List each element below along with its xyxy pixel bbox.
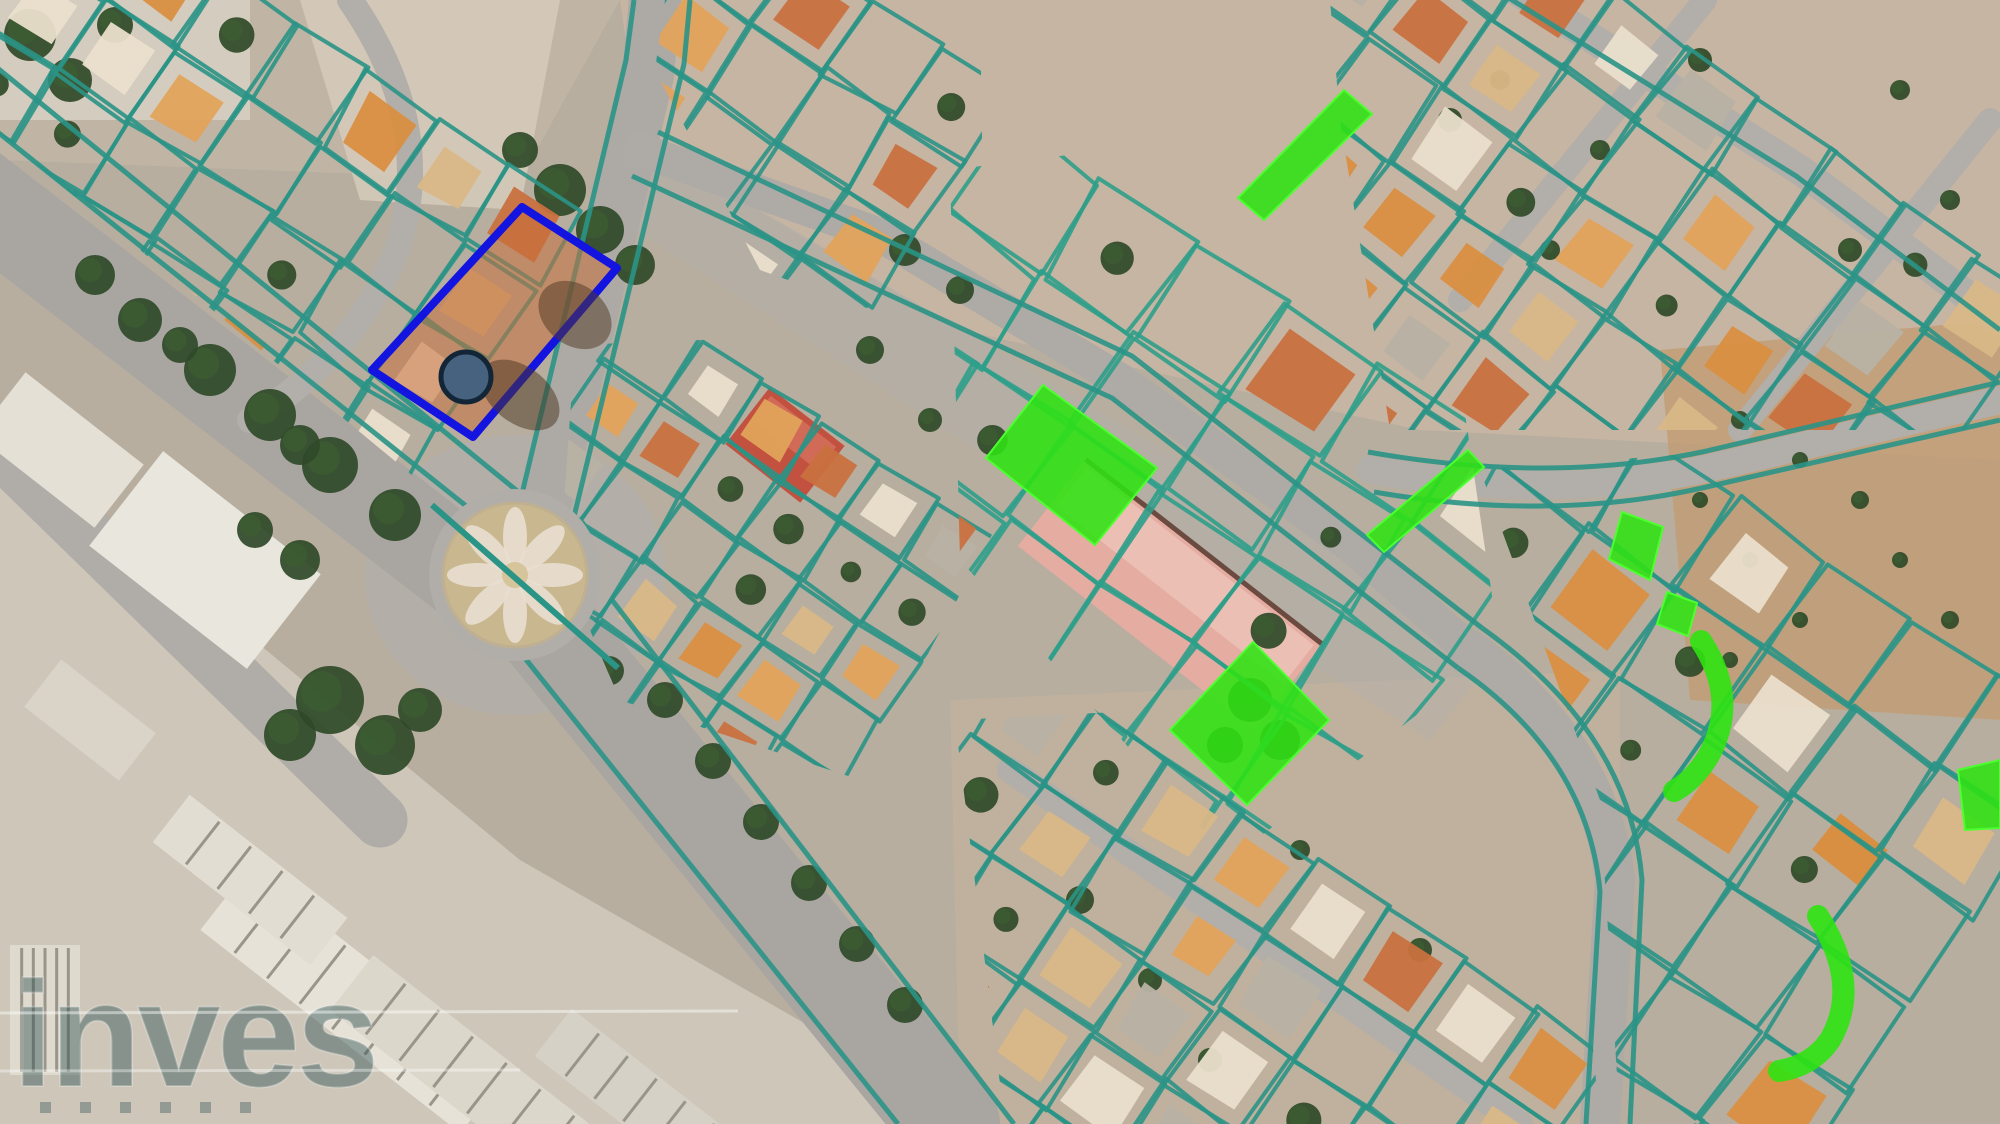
tree-highlight (1677, 649, 1695, 667)
tree-highlight (966, 780, 987, 801)
tree-highlight (1103, 244, 1123, 264)
tree-highlight (1840, 240, 1854, 254)
tree-highlight (1140, 970, 1154, 984)
tree-highlight (979, 427, 997, 445)
watermark-text: inves (12, 950, 376, 1118)
tree-highlight (269, 263, 286, 280)
tree-highlight (1942, 612, 1953, 623)
tree-highlight (900, 601, 916, 617)
watermark-dot (80, 1102, 91, 1113)
watermark-dot (200, 1102, 211, 1113)
watermark-dot (240, 1102, 251, 1113)
watermark-line (0, 1070, 520, 1071)
tree-highlight (283, 428, 307, 452)
tree-highlight (1793, 453, 1803, 463)
tree-highlight (920, 410, 934, 424)
tree-highlight (373, 493, 404, 524)
tree-highlight (1892, 82, 1904, 94)
tree-highlight (794, 868, 816, 890)
tree-highlight (248, 393, 279, 424)
tree-highlight (1322, 528, 1335, 541)
tree-highlight (1693, 493, 1703, 503)
tree-highlight (890, 990, 912, 1012)
tree-highlight (240, 515, 262, 537)
tree-highlight (222, 20, 243, 41)
tree-highlight (1592, 142, 1604, 154)
tree-highlight (858, 338, 875, 355)
tree-highlight (283, 543, 307, 567)
tree-highlight (1723, 653, 1733, 663)
tree-highlight (1893, 553, 1903, 563)
tree-highlight (719, 478, 734, 493)
tree-highlight (1253, 615, 1275, 637)
tree-highlight (698, 746, 720, 768)
watermark-line (0, 1011, 738, 1013)
tree-highlight (360, 720, 396, 756)
available-plot-highlight[interactable] (1958, 760, 2000, 830)
tree-highlight (746, 807, 768, 829)
tree-highlight (78, 258, 102, 282)
pool-circle (441, 352, 491, 402)
tree-highlight (1509, 190, 1526, 207)
tree-highlight (505, 135, 527, 157)
tree-highlight (650, 685, 672, 707)
watermark-dot (120, 1102, 131, 1113)
tree-highlight (1622, 741, 1635, 754)
satellite-map[interactable]: inves (0, 0, 2000, 1124)
tree-highlight (301, 671, 342, 712)
watermark-dot (40, 1102, 51, 1113)
watermark-dot (160, 1102, 171, 1113)
tree-highlight (948, 278, 965, 295)
tree-highlight (121, 301, 147, 327)
tree-highlight (1793, 858, 1809, 874)
tree-highlight (842, 929, 864, 951)
tree-highlight (1657, 296, 1670, 309)
tree-highlight (165, 330, 187, 352)
tree-highlight (401, 691, 427, 717)
tree-highlight (1793, 613, 1803, 623)
tree-highlight (995, 909, 1010, 924)
tree-highlight (1852, 492, 1863, 503)
tree-highlight (776, 516, 794, 534)
tree-highlight (738, 577, 756, 595)
tree-highlight (842, 563, 854, 575)
tree-highlight (268, 713, 299, 744)
map-viewport[interactable]: inves (0, 0, 2000, 1124)
tree-highlight (939, 95, 956, 112)
tree-highlight (1095, 762, 1110, 777)
tree-highlight (1942, 192, 1954, 204)
